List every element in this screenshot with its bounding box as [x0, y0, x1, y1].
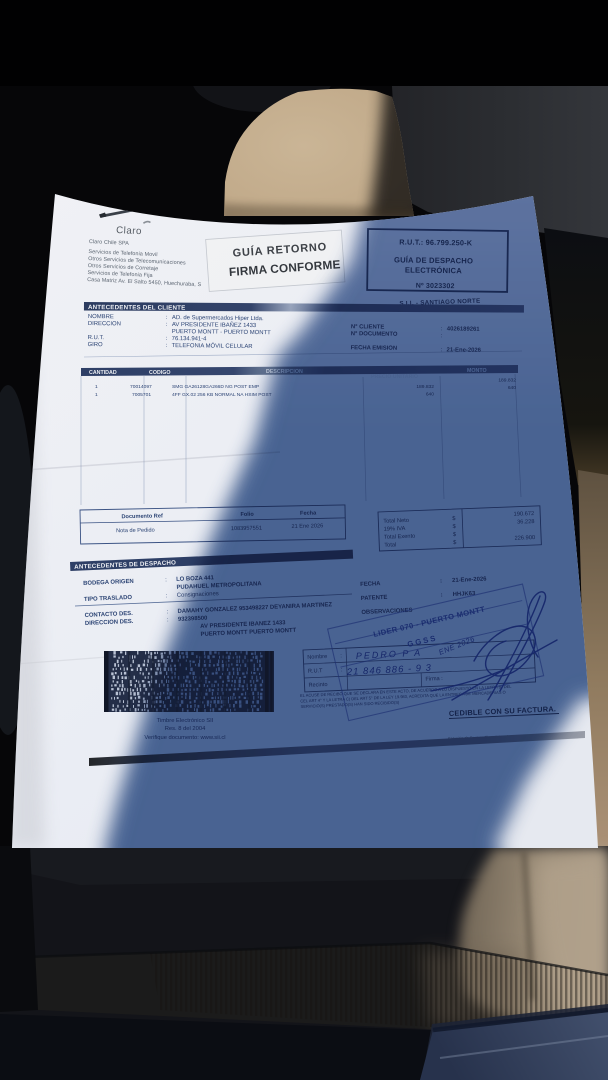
svg-text:Nota de Pedido: Nota de Pedido: [116, 528, 155, 535]
svg-text:4FF GX.02 256 KB NORMAL NA HSI: 4FF GX.02 256 KB NORMAL NA HSIM POST: [172, 392, 272, 398]
svg-text:R.U.T.: R.U.T.: [88, 335, 105, 341]
svg-text:1: 1: [95, 384, 98, 390]
svg-text:Documento Ref: Documento Ref: [121, 513, 163, 520]
svg-text:NOMBRE: NOMBRE: [88, 314, 114, 320]
svg-text:CODIGO: CODIGO: [149, 370, 170, 376]
svg-text:76.134.941-4: 76.134.941-4: [172, 336, 208, 342]
svg-text:AD. de Supermercados Hiper Ltd: AD. de Supermercados Hiper Ltda.: [172, 315, 264, 322]
svg-text:PUERTO MONTT - PUERTO MONTT: PUERTO MONTT - PUERTO MONTT: [172, 329, 271, 336]
svg-text:CANTIDAD: CANTIDAD: [89, 370, 117, 376]
svg-text:TELEFONIA MÓVIL CELULAR: TELEFONIA MÓVIL CELULAR: [172, 342, 253, 350]
svg-text:ANTECEDENTES DEL CLIENTE: ANTECEDENTES DEL CLIENTE: [88, 304, 186, 312]
svg-text:7005701: 7005701: [132, 392, 151, 398]
svg-text:SMG GA26128GA266D NG POST EMP: SMG GA26128GA266D NG POST EMP: [172, 384, 259, 390]
svg-text:1: 1: [95, 392, 98, 398]
svg-text:70014097: 70014097: [130, 384, 152, 390]
svg-text:Claro: Claro: [116, 225, 142, 237]
svg-text:AV PRESIDENTE IBAÑEZ 1433: AV PRESIDENTE IBAÑEZ 1433: [172, 321, 257, 329]
svg-text:DIRECCION: DIRECCION: [88, 321, 121, 327]
svg-text:GIRO: GIRO: [88, 342, 104, 348]
